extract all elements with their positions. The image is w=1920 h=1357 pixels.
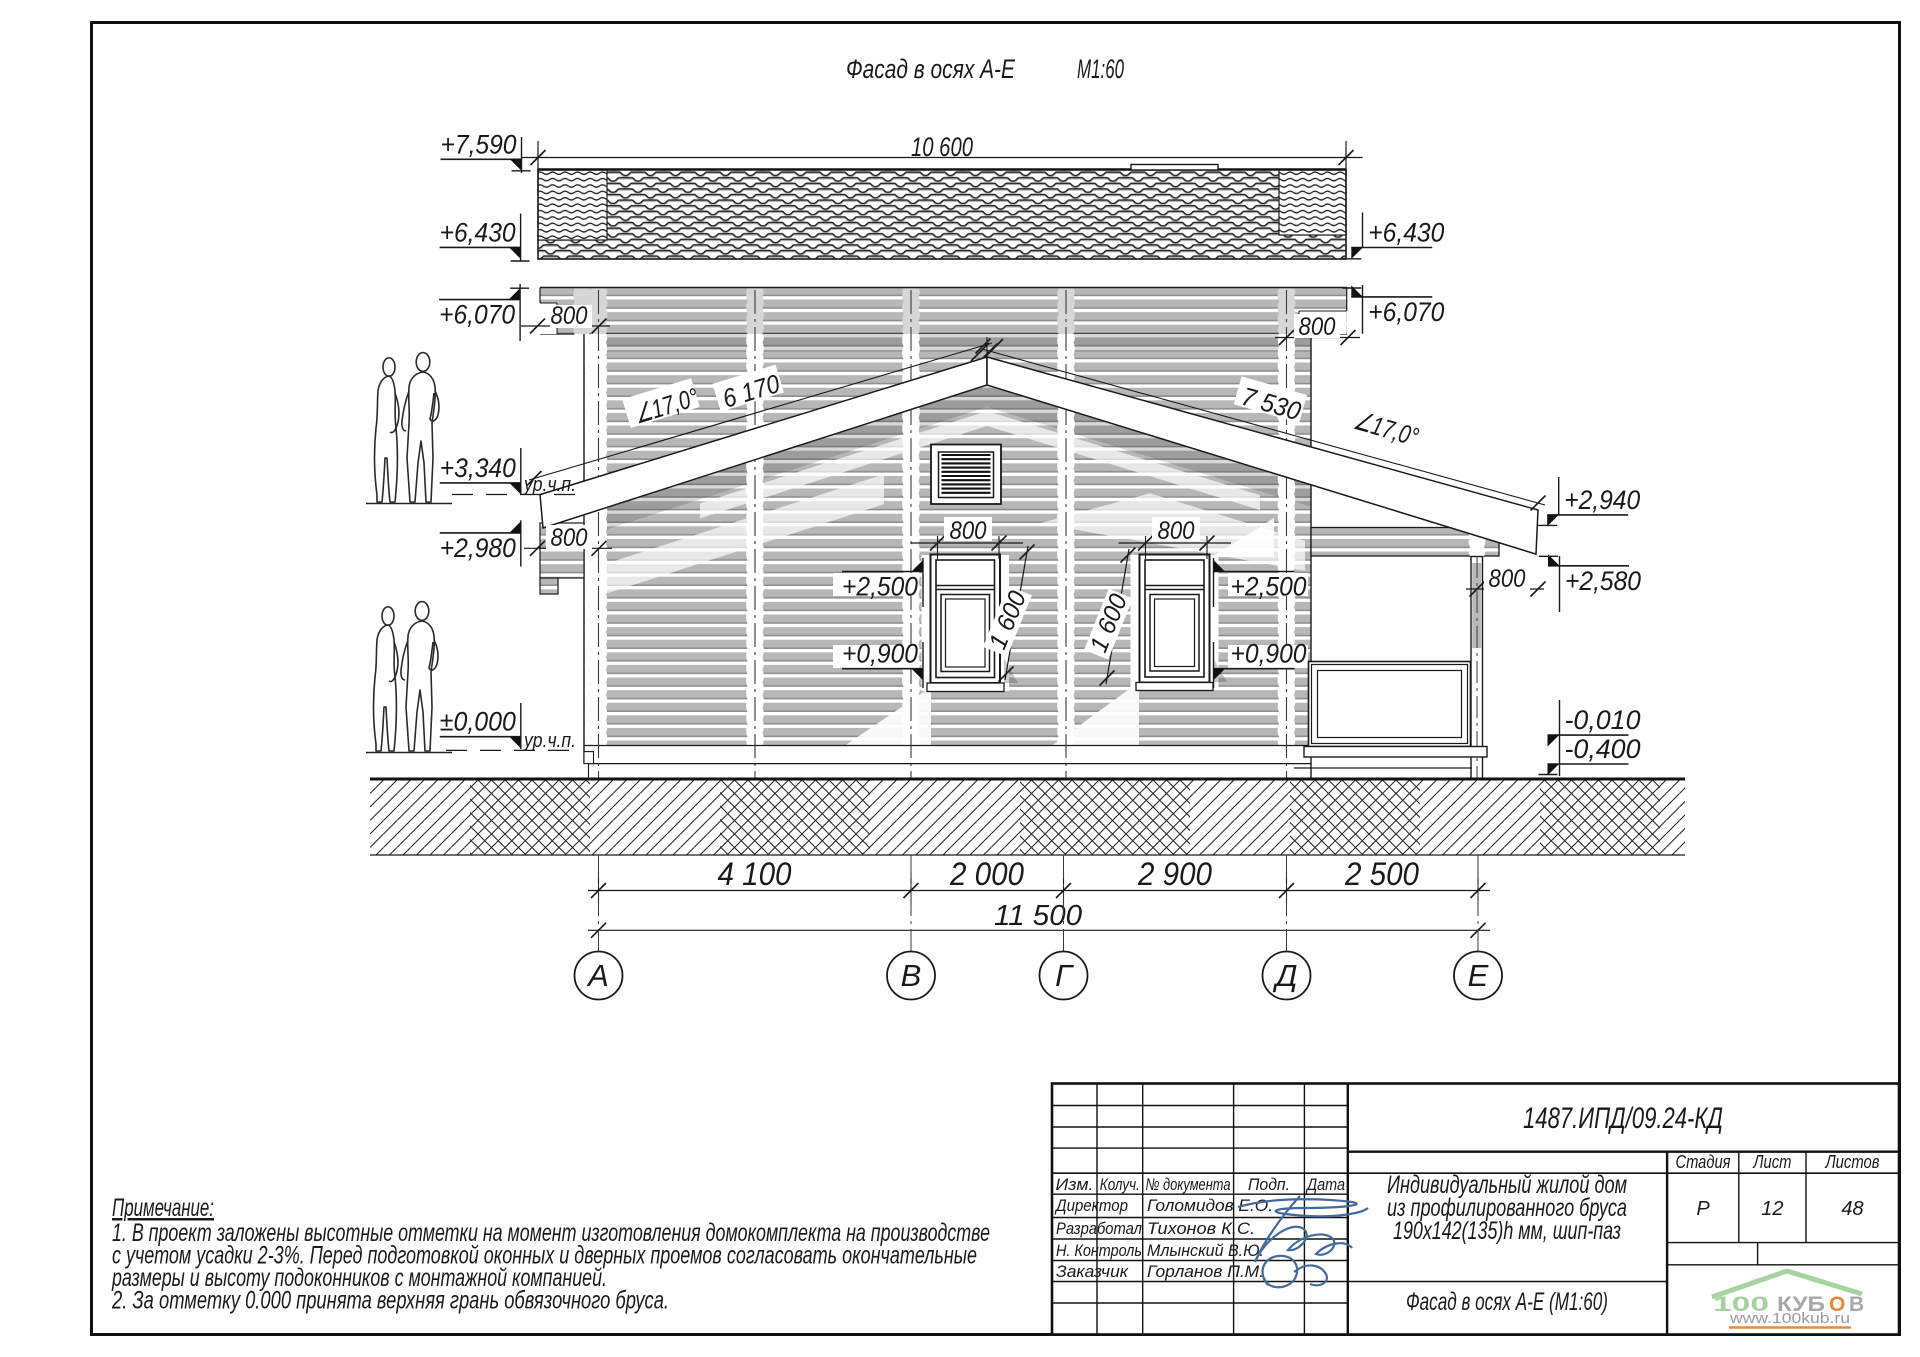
svg-text:+2,980: +2,980: [440, 533, 516, 563]
svg-text:Лист: Лист: [1753, 1152, 1792, 1172]
svg-text:800: 800: [1299, 313, 1336, 341]
svg-text:Подп.: Подп.: [1248, 1175, 1290, 1194]
svg-text:+3,340: +3,340: [440, 453, 516, 483]
svg-text:Фасад в осях А-Е (М1:60): Фасад в осях А-Е (М1:60): [1406, 1288, 1608, 1316]
svg-text:10 600: 10 600: [911, 132, 973, 162]
svg-text:www.100kub.ru: www.100kub.ru: [1729, 1310, 1850, 1327]
svg-text:+6,430: +6,430: [1368, 218, 1444, 248]
svg-text:В: В: [901, 958, 922, 993]
svg-text:4 100: 4 100: [718, 856, 792, 892]
svg-text:Примечание:: Примечание:: [112, 1194, 214, 1222]
svg-text:Н. Контроль: Н. Контроль: [1056, 1241, 1142, 1260]
svg-text:ур.ч.п.: ур.ч.п.: [522, 474, 576, 496]
svg-text:+2,580: +2,580: [1565, 566, 1641, 596]
svg-text:+0,900: +0,900: [1231, 639, 1307, 669]
svg-text:Заказчик: Заказчик: [1056, 1262, 1129, 1281]
svg-text:Стадия: Стадия: [1676, 1152, 1731, 1172]
svg-text:800: 800: [950, 517, 987, 545]
svg-text:Тихонов К.С.: Тихонов К.С.: [1147, 1219, 1255, 1238]
svg-text:1487.ИПД/09.24-КД: 1487.ИПД/09.24-КД: [1523, 1102, 1723, 1135]
svg-text:11 500: 11 500: [994, 900, 1082, 932]
svg-text:Фасад в осях А-Е: Фасад в осях А-Е: [846, 54, 1016, 84]
svg-text:190х142(135)h мм, шип-паз: 190х142(135)h мм, шип-паз: [1393, 1217, 1621, 1245]
svg-text:800: 800: [1158, 517, 1195, 545]
svg-text:+6,430: +6,430: [440, 217, 516, 247]
svg-text:Горланов П.М.: Горланов П.М.: [1147, 1262, 1264, 1281]
svg-text:Е: Е: [1468, 958, 1489, 993]
svg-text:Листов: Листов: [1825, 1152, 1880, 1172]
svg-text:48: 48: [1841, 1198, 1863, 1220]
svg-text:Млынский В.Ю.: Млынский В.Ю.: [1147, 1241, 1264, 1260]
svg-text:2 500: 2 500: [1344, 856, 1419, 892]
svg-text:Колуч.: Колуч.: [1100, 1175, 1140, 1194]
svg-text:Г: Г: [1055, 958, 1074, 993]
svg-text:800: 800: [1489, 565, 1526, 593]
svg-text:№ документа: № документа: [1146, 1175, 1231, 1194]
svg-text:±0,000: ±0,000: [440, 707, 516, 737]
svg-text:+6,070: +6,070: [1368, 297, 1444, 327]
svg-text:800: 800: [551, 302, 588, 330]
svg-text:800: 800: [551, 524, 588, 552]
svg-text:Голомидов Е.О.: Голомидов Е.О.: [1147, 1196, 1273, 1215]
svg-text:Дата: Дата: [1305, 1175, 1345, 1194]
svg-text:+2,940: +2,940: [1564, 485, 1640, 515]
svg-text:Д: Д: [1273, 958, 1298, 993]
svg-text:Разработал: Разработал: [1056, 1219, 1142, 1238]
svg-text:-0,010: -0,010: [1565, 705, 1641, 735]
svg-text:2. За отметку 0.000 принята ве: 2. За отметку 0.000 принята верхняя гран…: [111, 1287, 669, 1315]
svg-text:2 900: 2 900: [1137, 856, 1212, 892]
svg-text:М1:60: М1:60: [1077, 54, 1124, 84]
svg-text:+2,500: +2,500: [1231, 572, 1307, 602]
svg-text:+0,900: +0,900: [842, 639, 918, 669]
svg-text:А: А: [586, 958, 609, 993]
svg-text:+2,500: +2,500: [842, 572, 918, 602]
svg-text:Р: Р: [1696, 1198, 1710, 1220]
svg-text:Директор: Директор: [1054, 1196, 1128, 1215]
svg-text:-0,400: -0,400: [1565, 734, 1641, 764]
svg-text:В: В: [1849, 1293, 1864, 1316]
svg-text:Изм.: Изм.: [1056, 1175, 1094, 1194]
svg-text:+7,590: +7,590: [441, 129, 517, 159]
svg-text:ур.ч.п.: ур.ч.п.: [522, 730, 576, 752]
svg-text:+6,070: +6,070: [439, 300, 515, 330]
svg-text:12: 12: [1761, 1198, 1783, 1220]
svg-text:2 000: 2 000: [949, 856, 1024, 892]
